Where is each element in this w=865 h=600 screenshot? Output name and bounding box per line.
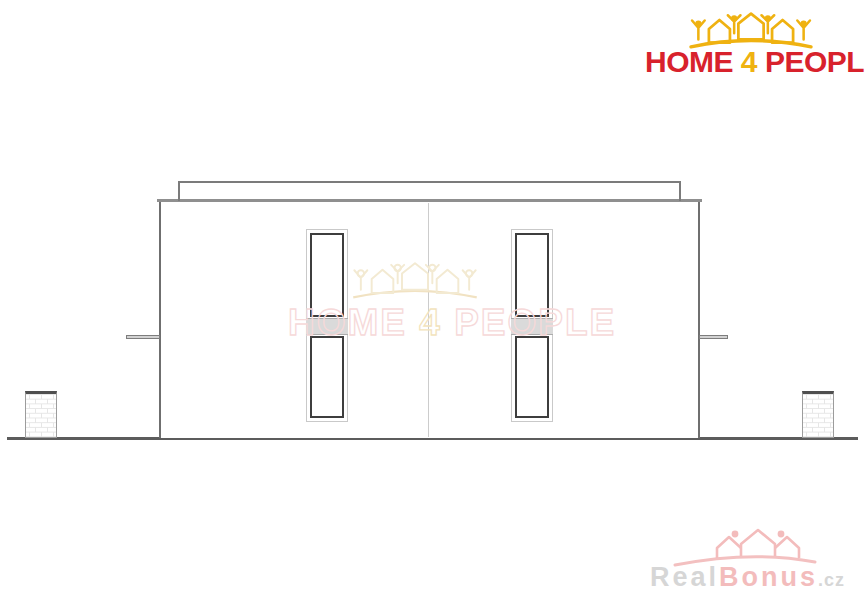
- brick-pattern: [803, 394, 833, 437]
- brick-pillar-right: [802, 391, 834, 438]
- realbonus-crown-icon: [655, 522, 850, 568]
- realbonus-word-cz: .cz: [818, 570, 845, 590]
- brand-logo: HOME 4 PEOPLE: [645, 8, 857, 78]
- spandrel-band-right: [511, 318, 553, 335]
- brick-pattern: [26, 394, 56, 437]
- brand-word-four: 4: [741, 45, 757, 78]
- window-lower-right: [515, 336, 549, 418]
- spandrel-band-left: [306, 318, 348, 335]
- side-ledge-right: [699, 335, 728, 339]
- brand-crown-icon: [686, 10, 816, 50]
- page: HOME 4 PEOPLE: [0, 0, 865, 600]
- brick-pillar-left: [25, 391, 57, 438]
- brand-word-home: HOME: [645, 45, 733, 78]
- brand-word-people: PEOPLE: [765, 45, 865, 78]
- building-outline: [159, 201, 700, 438]
- brand-wordmark: HOME 4 PEOPLE: [645, 45, 857, 79]
- realbonus-word-bonus: Bonus: [719, 562, 818, 592]
- parapet-end-right: [679, 181, 681, 201]
- realbonus-wordmark: RealBonus.cz: [650, 564, 845, 591]
- window-upper-left: [310, 233, 344, 317]
- window-column-right: [511, 229, 553, 422]
- roof-parapet-line: [178, 181, 681, 183]
- realbonus-word-real: Real: [650, 562, 719, 592]
- wall-top-line: [157, 199, 702, 202]
- window-lower-left: [310, 336, 344, 418]
- window-column-left: [306, 229, 348, 422]
- unit-divider-line: [428, 203, 429, 437]
- realbonus-watermark: RealBonus.cz: [645, 520, 860, 595]
- side-ledge-left: [126, 335, 160, 339]
- parapet-end-left: [178, 181, 180, 201]
- window-upper-right: [515, 233, 549, 317]
